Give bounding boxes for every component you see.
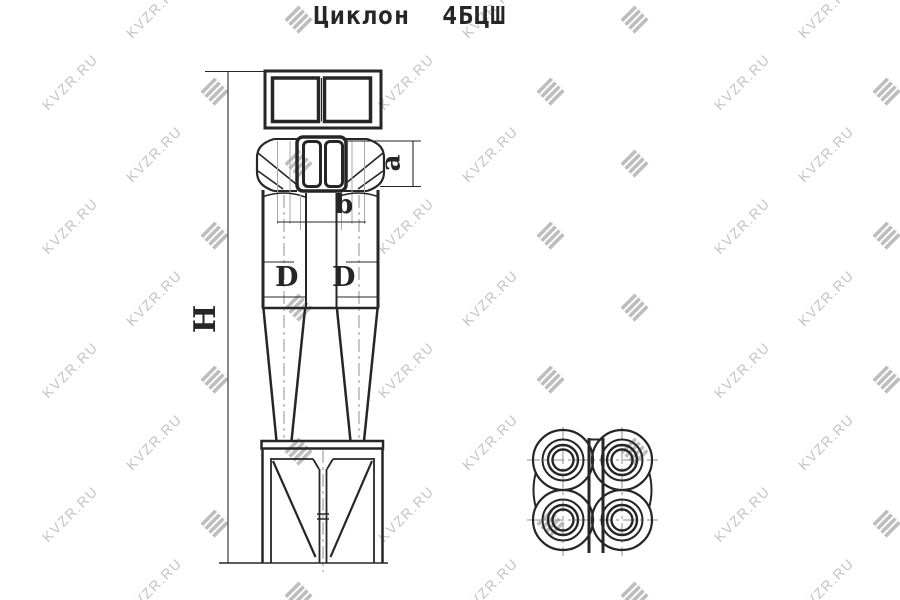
technical-drawing (0, 0, 900, 600)
cone-section (262, 308, 379, 441)
dim-label-D-left: D (275, 264, 298, 291)
drawing-title: Циклон 4БЦШ (310, 3, 510, 28)
drawing-sheet: ≣KVZR.RU≣KVZR.RU≣KVZR.RU≣KVZR.RU≣KVZR.RU… (0, 0, 900, 600)
plan-cyclone-bottom-right (592, 490, 652, 550)
dust-hopper (219, 441, 388, 572)
dim-label-a: a (378, 155, 404, 172)
spiral-inlet-section (257, 137, 384, 224)
plan-view (527, 427, 658, 558)
dim-label-H: H (191, 305, 221, 333)
cylinder-section (262, 190, 379, 438)
outlet-box (265, 71, 381, 128)
dim-label-b: b (335, 192, 353, 218)
dim-label-D-right: D (332, 264, 355, 291)
